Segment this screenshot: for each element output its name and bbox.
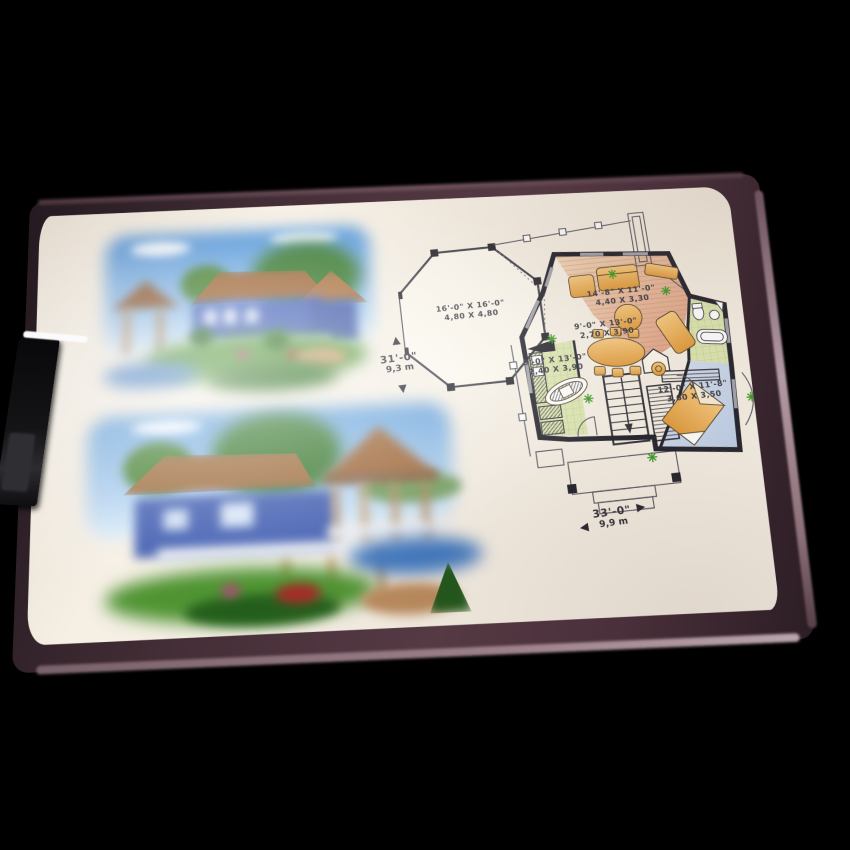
floor-plan-drawing: [389, 186, 779, 635]
floor-plan: 16'-0" X 16'-0" 4,80 X 4,80 14'-8" X 11'…: [389, 186, 779, 635]
plan-sheet: 16'-0" X 16'-0" 4,80 X 4,80 14'-8" X 11'…: [27, 186, 780, 645]
left-arrow-icon: ◀: [579, 521, 589, 533]
clipboard: 16'-0" X 16'-0" 4,80 X 4,80 14'-8" X 11'…: [12, 174, 816, 674]
window: [221, 502, 254, 528]
porch-posts: [567, 472, 682, 493]
width-text: 33'-0" 9,9 m: [592, 503, 634, 530]
water: [103, 361, 198, 390]
window: [245, 308, 258, 324]
clip-lower-plate: [1, 433, 35, 492]
photo-stage: 16'-0" X 16'-0" 4,80 X 4,80 14'-8" X 11'…: [0, 0, 850, 850]
gazebo-post: [157, 310, 163, 354]
gazebo-post: [124, 309, 130, 354]
house-rendering-top: [89, 217, 393, 403]
dining-table: [587, 338, 646, 367]
dimension-depth: ▲ 31'-0" 9,3 m ▼: [364, 331, 435, 398]
gazebo-roof: [112, 279, 178, 310]
window: [224, 308, 237, 324]
right-arrow-icon: ▶: [636, 501, 647, 513]
window: [204, 309, 217, 325]
window: [163, 509, 188, 531]
